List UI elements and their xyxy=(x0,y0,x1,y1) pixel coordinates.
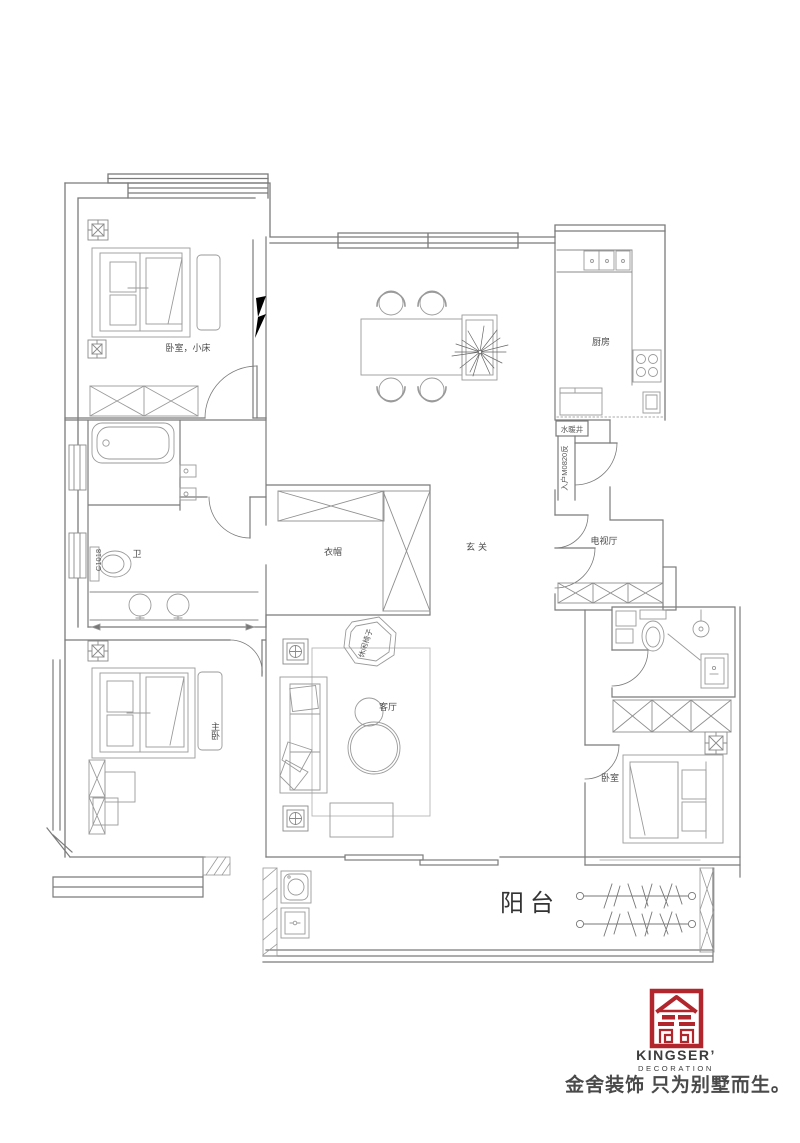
pillow xyxy=(110,295,136,325)
speaker-column-icon xyxy=(283,639,308,664)
brand-logo: KINGSER’ DECORATION 金舍装饰 只为别墅而生。 xyxy=(564,991,791,1096)
label-cloakroom: 衣帽 xyxy=(324,546,342,557)
bedroom2-wardrobe xyxy=(613,700,731,732)
column-icon xyxy=(705,732,727,754)
dining-table xyxy=(361,319,462,375)
column-icon xyxy=(88,641,108,661)
label-bath: 卫 xyxy=(132,549,141,559)
drying-rack xyxy=(576,884,695,908)
stove xyxy=(633,350,661,382)
sofa-pillow xyxy=(290,685,319,711)
pillow xyxy=(110,262,136,292)
dining-set xyxy=(361,291,508,402)
logo-glyph-icon xyxy=(658,997,695,1042)
toilet-tank xyxy=(640,610,666,619)
label-window-code: C1018 xyxy=(94,549,103,571)
pillow xyxy=(107,715,133,746)
column-icon xyxy=(88,220,108,240)
basin xyxy=(129,594,151,616)
label-kitchen: 厨房 xyxy=(592,336,610,347)
label-balcony: 阳台 xyxy=(500,890,560,917)
sofa-pillow xyxy=(282,742,312,772)
column-icon xyxy=(88,340,106,358)
shower-icon xyxy=(693,621,709,637)
drying-rack xyxy=(576,912,695,936)
label-foyer: 玄关 xyxy=(466,541,490,552)
kitchen-fixtures xyxy=(557,250,663,417)
electric-panel-icon xyxy=(255,296,266,338)
bathtub xyxy=(92,423,174,463)
label-entry-door: 入户M0820反 xyxy=(559,445,569,491)
bedroom2-furniture xyxy=(600,755,723,860)
pillow xyxy=(682,802,706,831)
tv-cabinet xyxy=(330,803,393,837)
label-master: 主卧 xyxy=(210,721,220,741)
balcony-fixtures xyxy=(281,871,696,938)
toilet xyxy=(642,621,664,651)
label-living: 客厅 xyxy=(379,701,397,712)
brand-slogan: 金舍装饰 只为别墅而生。 xyxy=(564,1073,791,1096)
brand-name: KINGSER’ xyxy=(636,1047,716,1063)
basin xyxy=(167,594,189,616)
bedroom-small-furniture xyxy=(90,248,220,416)
closet-wardrobes xyxy=(278,491,430,611)
bathroom2-fixtures xyxy=(616,610,728,688)
floor-plan: 卧室，小床 厨房 水暖井 入户M0820反 C1018 卫 衣帽 玄关 电视厅 … xyxy=(0,0,800,1138)
master-furniture xyxy=(89,668,222,834)
pillow xyxy=(682,770,706,799)
fridge xyxy=(560,388,602,415)
tv-hall-cabinet xyxy=(558,583,663,603)
brand-sub: DECORATION xyxy=(638,1064,714,1073)
interior-walls xyxy=(47,237,740,962)
label-bedroom2: 卧室 xyxy=(601,772,619,783)
label-bedroom-small: 卧室，小床 xyxy=(165,342,210,353)
label-tv-hall: 电视厅 xyxy=(590,535,617,546)
speaker-column-icon xyxy=(283,806,308,831)
wall-hatches xyxy=(203,857,714,956)
label-shaft: 水暖井 xyxy=(561,424,584,434)
coffee-table xyxy=(348,722,400,774)
pillow xyxy=(107,681,133,712)
floorplan-page: 卧室，小床 厨房 水暖井 入户M0820反 C1018 卫 衣帽 玄关 电视厅 … xyxy=(0,0,800,1138)
living-furniture xyxy=(280,617,430,837)
bathroom1-fixtures xyxy=(90,423,258,630)
plant-icon xyxy=(452,326,508,376)
label-leisure-chair: 休闲椅子 xyxy=(356,627,375,659)
